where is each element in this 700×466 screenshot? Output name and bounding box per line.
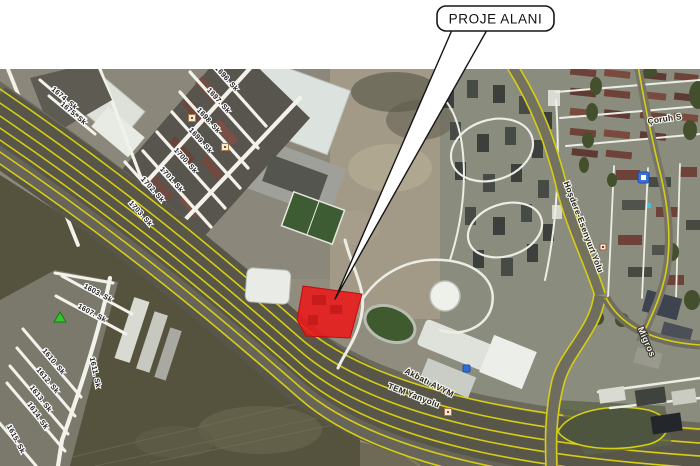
metro-station-icon [638, 172, 649, 183]
callout-label: PROJE ALANI [449, 12, 543, 27]
project-area-polygon [297, 286, 362, 338]
bus-stop-icon [445, 409, 452, 416]
figure-proje-alani-map: 1674. Sk 1675. Sk 1696. Sk 1697. Sk 1698… [0, 0, 700, 466]
poi-dot-icon [600, 244, 606, 250]
poi-blue-icon [463, 365, 470, 372]
map-canvas[interactable]: 1674. Sk 1675. Sk 1696. Sk 1697. Sk 1698… [0, 0, 700, 466]
dome-building [430, 281, 460, 311]
bus-stop-icon [189, 115, 196, 122]
bus-stop-icon [222, 144, 229, 151]
callout: PROJE ALANI [437, 6, 554, 31]
satellite-map: 1674. Sk 1675. Sk 1696. Sk 1697. Sk 1698… [0, 42, 700, 466]
